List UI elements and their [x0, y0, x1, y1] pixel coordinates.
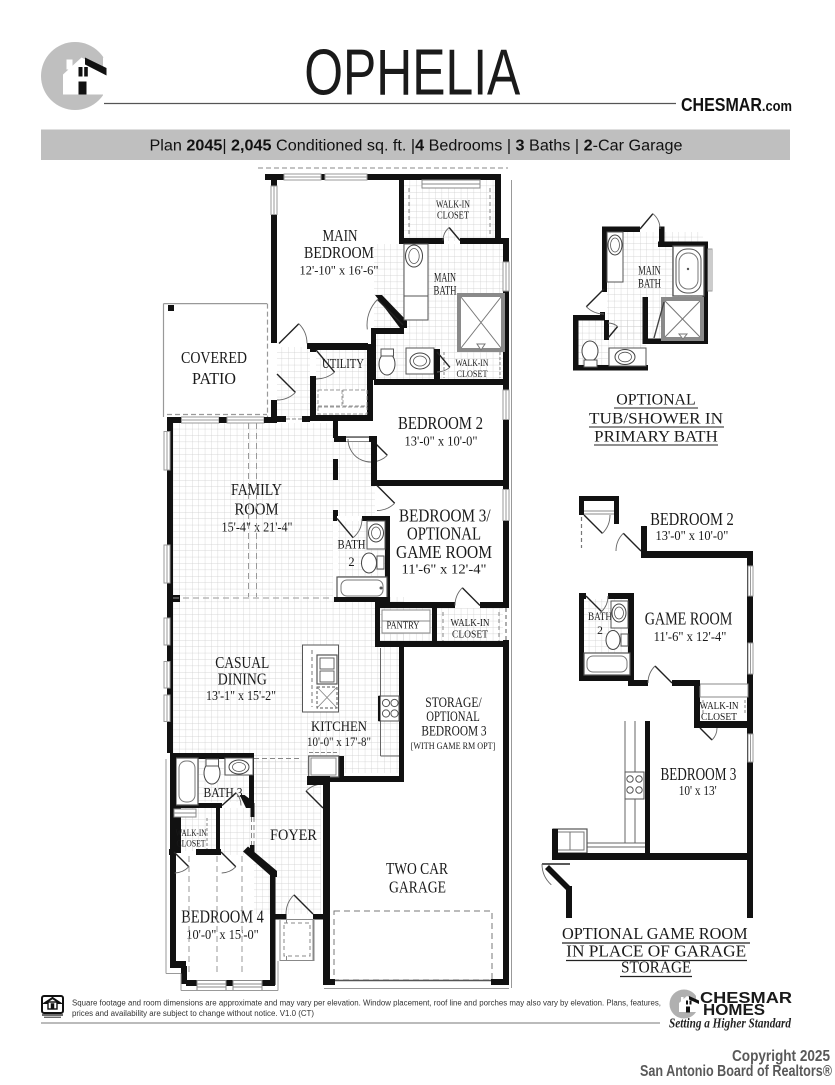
svg-text:San Antonio Board of Realtors®: San Antonio Board of Realtors® [640, 1063, 832, 1080]
svg-text:PANTRY: PANTRY [387, 621, 420, 632]
svg-text:BEDROOM 3: BEDROOM 3 [660, 764, 736, 784]
svg-text:BEDROOM: BEDROOM [304, 243, 374, 262]
svg-text:Square footage and room dimens: Square footage and room dimensions are a… [72, 999, 661, 1008]
svg-text:[WITH GAME RM OPT]: [WITH GAME RM OPT] [411, 742, 496, 752]
svg-text:WALK-IN: WALK-IN [436, 200, 470, 211]
svg-text:WALK-IN: WALK-IN [176, 829, 207, 839]
svg-text:MAIN: MAIN [638, 264, 660, 278]
svg-text:KITCHEN: KITCHEN [311, 719, 367, 735]
svg-text:TUB/SHOWER IN: TUB/SHOWER IN [589, 411, 723, 428]
svg-text:CLOSET: CLOSET [457, 370, 488, 380]
svg-text:BEDROOM 2: BEDROOM 2 [650, 509, 734, 529]
svg-text:10' x 13': 10' x 13' [679, 783, 717, 798]
svg-text:13'-0" x 10'-0": 13'-0" x 10'-0" [656, 528, 729, 543]
svg-text:BATH: BATH [638, 277, 661, 291]
svg-text:WALK-IN: WALK-IN [451, 618, 490, 629]
svg-text:10'-0" x 15'-0": 10'-0" x 15'-0" [186, 927, 259, 942]
svg-text:BATH 3: BATH 3 [204, 785, 243, 800]
svg-text:BEDROOM 3: BEDROOM 3 [421, 724, 486, 740]
svg-text:13'-0" x 10'-0": 13'-0" x 10'-0" [405, 434, 478, 449]
svg-text:GAME ROOM: GAME ROOM [645, 609, 733, 629]
svg-text:WALK-IN: WALK-IN [700, 701, 739, 712]
svg-text:BATH: BATH [338, 538, 366, 552]
svg-text:10'-0" x 17'-8": 10'-0" x 17'-8" [307, 734, 371, 749]
svg-text:COVERED: COVERED [181, 348, 247, 367]
svg-text:BATH: BATH [434, 284, 457, 298]
svg-text:CLOSET: CLOSET [701, 712, 737, 723]
svg-text:OPTIONAL: OPTIONAL [407, 524, 481, 544]
svg-text:2: 2 [348, 555, 354, 569]
svg-text:STORAGE: STORAGE [621, 958, 691, 977]
svg-text:Setting a Higher Standard: Setting a Higher Standard [669, 1016, 791, 1031]
svg-text:2: 2 [597, 625, 603, 637]
svg-text:UTILITY: UTILITY [322, 356, 364, 371]
svg-text:DINING: DINING [218, 670, 267, 689]
svg-text:12'-10" x 16'-6": 12'-10" x 16'-6" [300, 263, 379, 278]
svg-text:OPTIONAL GAME ROOM: OPTIONAL GAME ROOM [562, 924, 748, 943]
svg-text:13'-1" x 15'-2": 13'-1" x 15'-2" [206, 688, 276, 703]
svg-text:PRIMARY BATH: PRIMARY BATH [594, 429, 718, 446]
svg-text:OPHELIA: OPHELIA [304, 37, 520, 109]
svg-text:BEDROOM 2: BEDROOM 2 [398, 413, 483, 433]
svg-text:prices and availability are su: prices and availability are subject to c… [72, 1009, 314, 1018]
svg-text:PATIO: PATIO [192, 369, 236, 388]
svg-text:11'-6" x 12'-4": 11'-6" x 12'-4" [654, 629, 727, 644]
svg-text:CLOSET: CLOSET [437, 211, 469, 222]
svg-text:CLOSET: CLOSET [177, 840, 206, 850]
svg-text:GARAGE: GARAGE [389, 878, 446, 897]
svg-text:WALK-IN: WALK-IN [456, 359, 489, 369]
svg-text:OPTIONAL: OPTIONAL [616, 392, 696, 409]
svg-text:TWO CAR: TWO CAR [386, 859, 448, 878]
svg-text:Plan 2045| 2,045 Conditioned s: Plan 2045| 2,045 Conditioned sq. ft. |4 … [150, 138, 683, 155]
svg-text:FOYER: FOYER [270, 827, 318, 844]
svg-text:CLOSET: CLOSET [452, 630, 488, 641]
svg-text:BEDROOM 4: BEDROOM 4 [181, 907, 264, 927]
svg-text:GAME ROOM: GAME ROOM [396, 542, 492, 562]
svg-text:BATH: BATH [588, 611, 612, 623]
svg-text:11'-6" x 12'-4": 11'-6" x 12'-4" [402, 562, 487, 577]
svg-text:MAIN: MAIN [434, 271, 456, 285]
svg-text:BEDROOM 3/: BEDROOM 3/ [399, 506, 491, 526]
